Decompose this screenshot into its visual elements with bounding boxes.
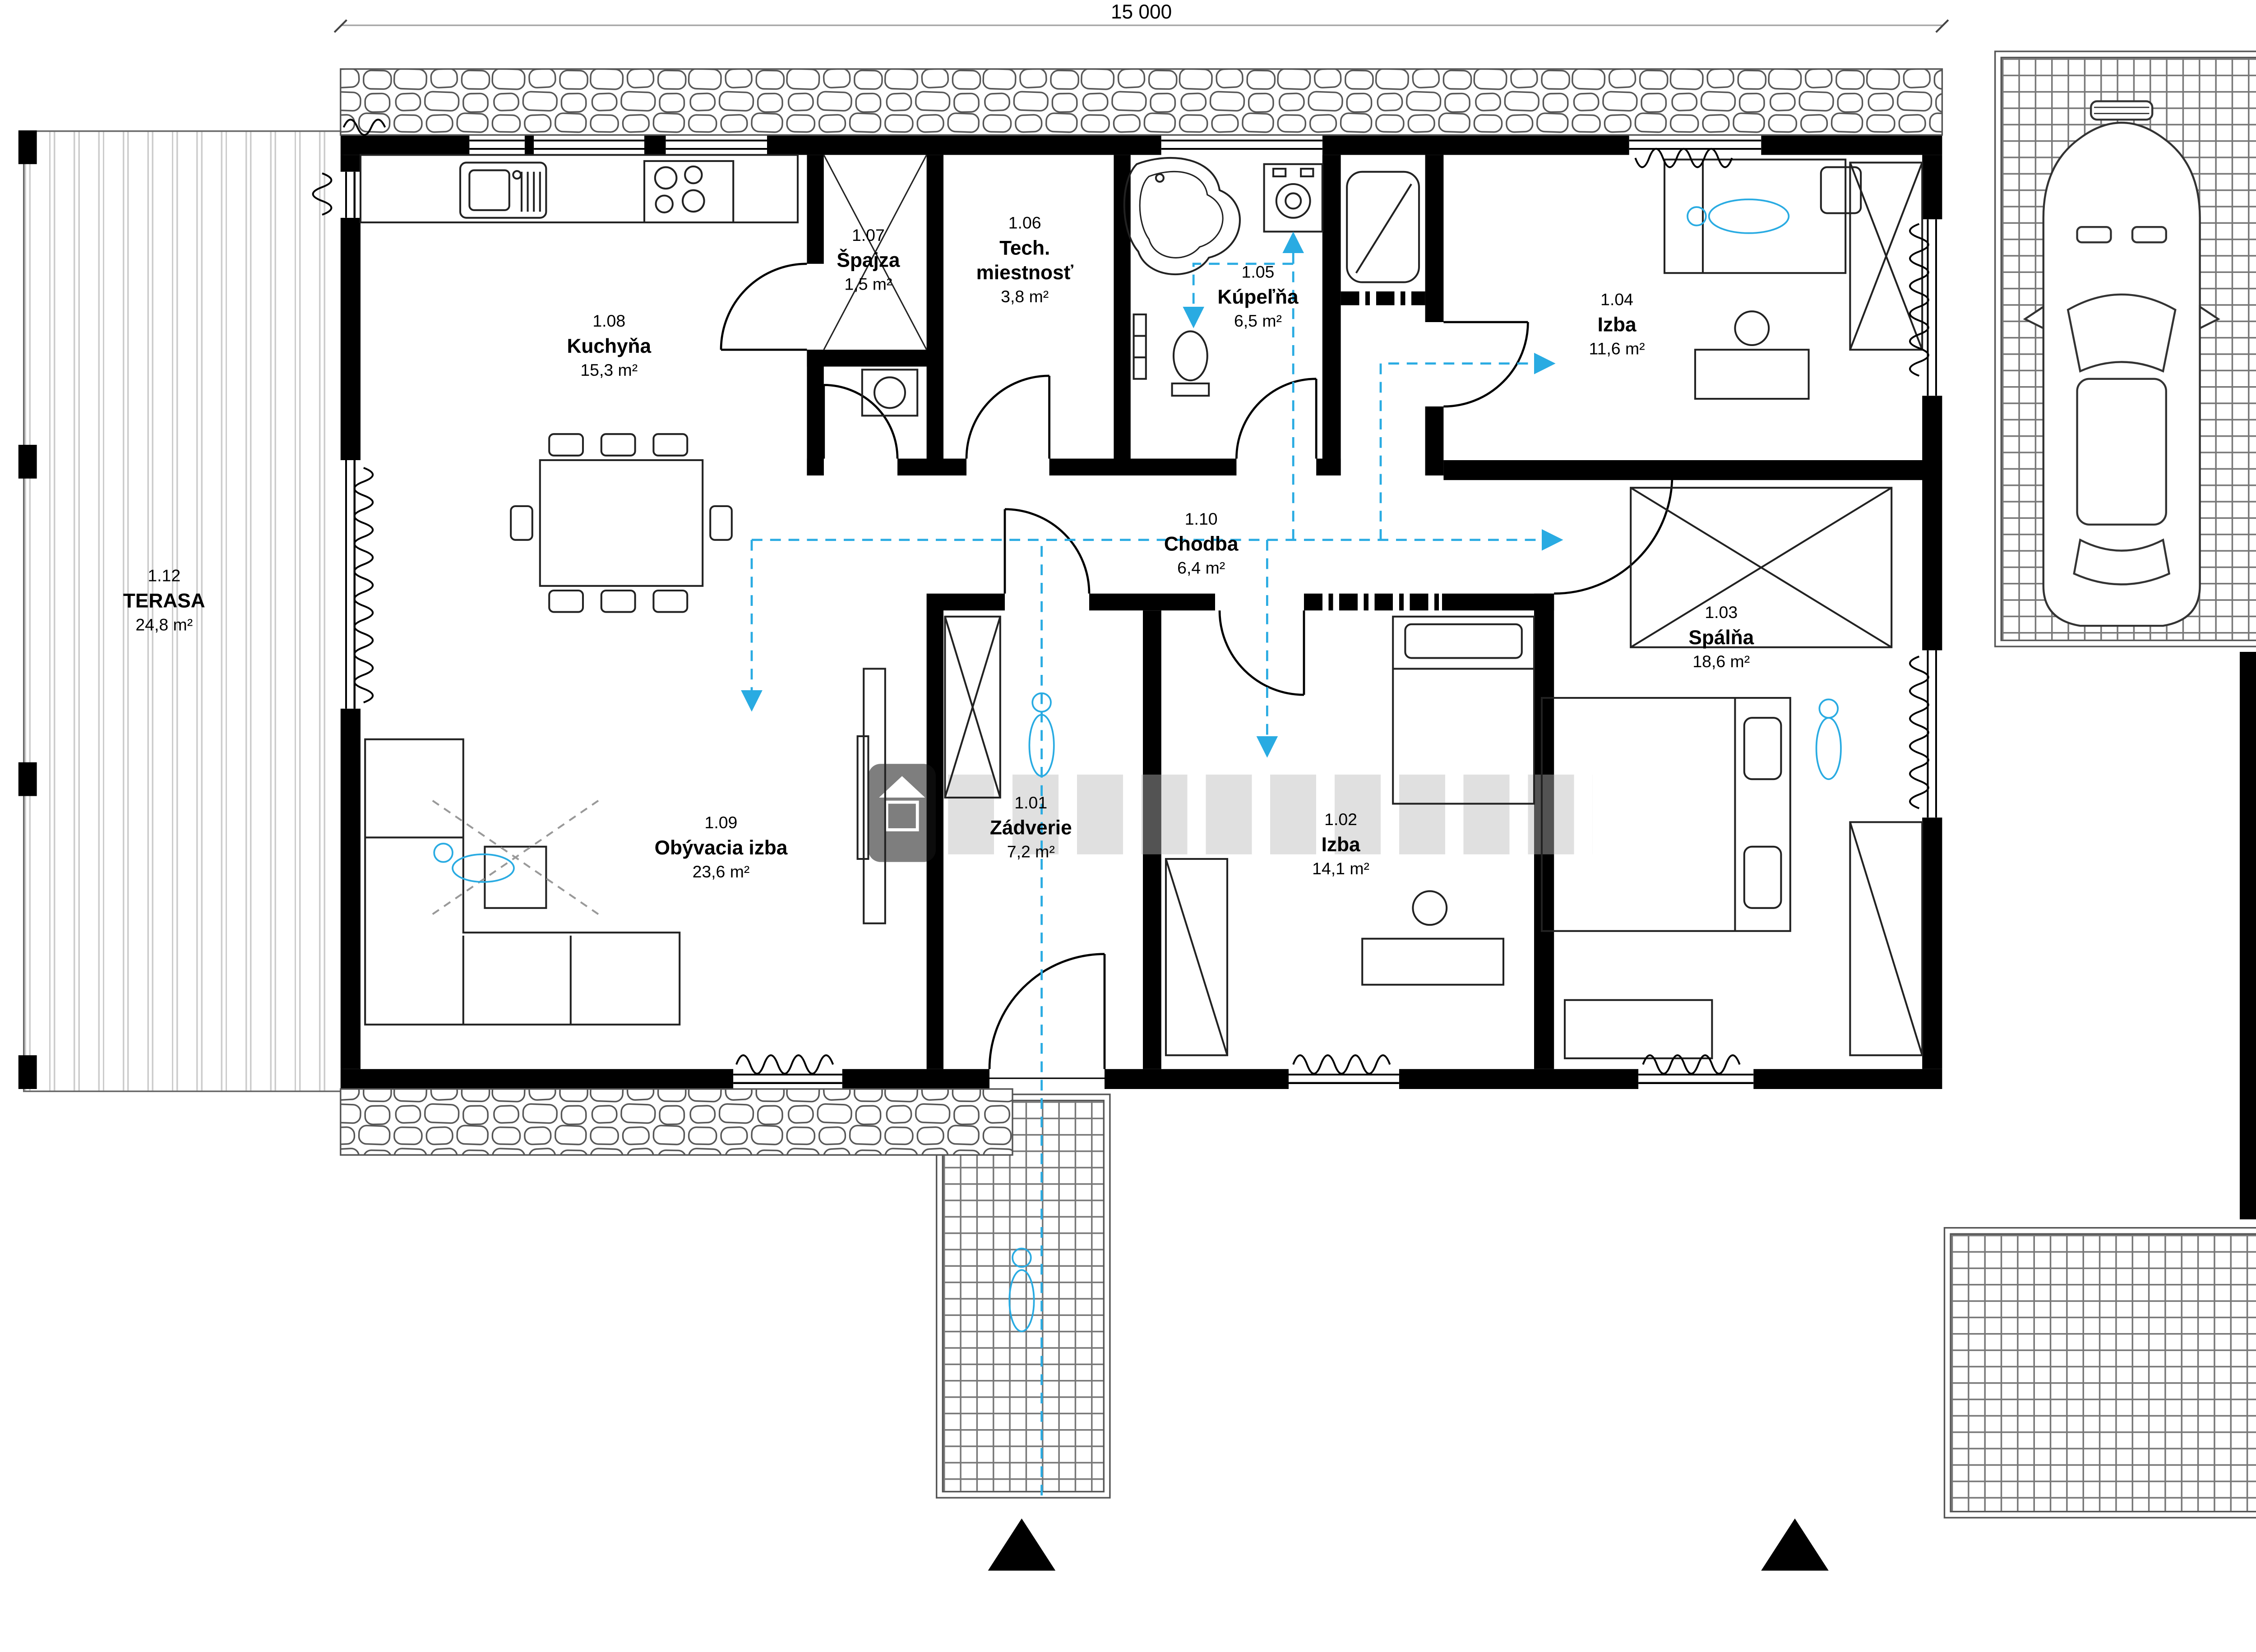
dimension-ticks	[334, 20, 2256, 1095]
room-label-spalna: 1.03 Spálňa 18,6 m²	[1629, 601, 1813, 675]
plan-drawing-overlay	[0, 0, 2256, 1652]
room-label-zadverie: 1.01 Zádverie 7,2 m²	[939, 791, 1123, 865]
toilet	[1172, 331, 1209, 396]
desk-room104	[1695, 311, 1809, 399]
double-bed	[1542, 698, 1790, 931]
bedroom-cabinet	[1565, 1000, 1712, 1058]
room-label-kuchyna: 1.08 Kuchyňa 15,3 m²	[517, 310, 701, 383]
bed-room102	[1393, 617, 1534, 804]
hall-wardrobe	[945, 617, 1000, 798]
kitchen-counter	[361, 155, 798, 222]
wardrobe-room102	[1166, 859, 1227, 1055]
room-label-kupelna: 1.05 Kúpeľňa 6,5 m²	[1169, 261, 1347, 334]
washing-machine	[1264, 164, 1322, 232]
rug-lines	[433, 801, 598, 914]
room-label-obyvacia-izba: 1.09 Obývacia izba 23,6 m²	[598, 812, 844, 885]
room-label-spajza: 1.07 Špajza 1,5 m²	[791, 224, 945, 297]
tv-cabinet	[858, 669, 885, 923]
room-label-izba-104: 1.04 Izba 11,6 m²	[1525, 288, 1709, 362]
car-icon	[2025, 101, 2218, 626]
bed-room104	[1664, 160, 1861, 273]
bathroom-radiator	[1134, 314, 1146, 379]
room-label-izba-102: 1.02 Izba 14,1 m²	[1249, 808, 1433, 882]
desk-room102	[1362, 891, 1503, 984]
bathtub	[1124, 158, 1240, 274]
plan-scale-wrapper: 15 000 9 000 420	[0, 0, 2256, 1652]
bedroom-side-cabinet	[1850, 822, 1922, 1055]
room-label-terasa: 1.12 TERASA 24,8 m²	[72, 564, 256, 638]
boiler	[862, 369, 917, 415]
dining-table	[511, 434, 732, 612]
room-label-tech-miestnost: 1.06 Tech. miestnosť 3,8 m²	[954, 212, 1096, 310]
room-label-chodba: 1.10 Chodba 6,4 m²	[1109, 508, 1293, 581]
floor-plan-canvas: 15 000 9 000 420	[0, 0, 2256, 1652]
shower	[1347, 172, 1419, 282]
